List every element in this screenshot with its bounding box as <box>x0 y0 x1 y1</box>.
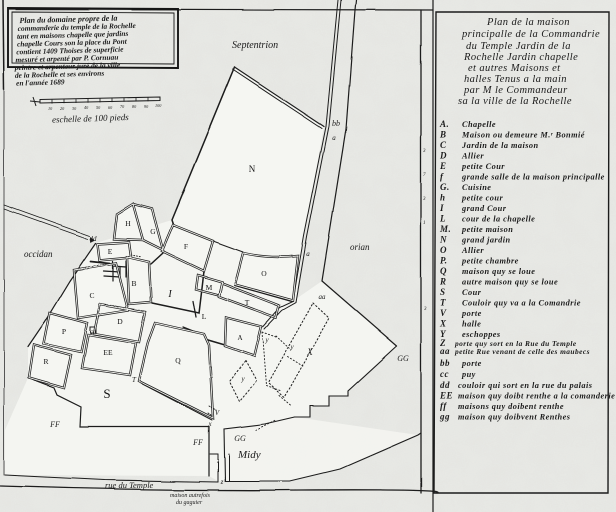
svg-text:P: P <box>62 327 66 336</box>
svg-text:du Temple Jardin de la: du Temple Jardin de la <box>466 41 571 52</box>
svg-text:sa la ville de la Rochelle: sa la ville de la Rochelle <box>458 96 572 107</box>
svg-text:Q: Q <box>440 266 447 276</box>
svg-text:B: B <box>439 130 446 140</box>
svg-text:grande salle de la maison prin: grande salle de la maison principalle <box>461 173 605 182</box>
svg-text:P.: P. <box>440 256 448 266</box>
svg-text:E: E <box>108 247 113 256</box>
svg-text:C: C <box>440 140 447 150</box>
svg-text:I: I <box>439 203 444 213</box>
svg-text:L: L <box>439 214 446 224</box>
svg-text:T: T <box>440 298 446 308</box>
svg-text:Cour: Cour <box>462 288 482 297</box>
svg-text:A: A <box>237 334 242 342</box>
svg-text:Allier: Allier <box>461 246 484 255</box>
svg-text:V: V <box>215 409 220 417</box>
svg-text:ff: ff <box>440 401 447 411</box>
svg-text:EE: EE <box>439 391 453 401</box>
svg-text:Maison ou demeure M.ʳ Bonmié: Maison ou demeure M.ʳ Bonmié <box>461 131 585 140</box>
svg-text:porte: porte <box>461 309 482 318</box>
svg-text:halle: halle <box>462 320 481 329</box>
svg-text:D: D <box>439 151 447 161</box>
svg-text:cc: cc <box>440 369 449 379</box>
svg-text:halles Tenus a la main: halles Tenus a la main <box>464 74 567 85</box>
svg-text:maison quy doibt renthe a la c: maison quy doibt renthe a la comanderie <box>458 392 615 401</box>
svg-text:Septentrion: Septentrion <box>232 40 278 51</box>
svg-text:EE: EE <box>103 348 113 357</box>
svg-text:S: S <box>103 386 110 401</box>
svg-text:L: L <box>202 312 207 321</box>
svg-text:N: N <box>439 235 447 245</box>
svg-text:Cuisine: Cuisine <box>462 183 491 192</box>
svg-text:petite Cour: petite Cour <box>461 162 505 171</box>
svg-text:bb: bb <box>332 119 340 128</box>
svg-text:V: V <box>440 308 447 318</box>
svg-text:M.: M. <box>439 224 451 234</box>
svg-text:I: I <box>167 289 172 300</box>
svg-text:H: H <box>125 219 131 228</box>
svg-text:autre maison quy se loue: autre maison quy se loue <box>462 278 558 287</box>
svg-text:a: a <box>332 134 336 142</box>
svg-text:petite maison: petite maison <box>461 225 513 234</box>
svg-text:O: O <box>440 245 447 255</box>
svg-text:bb: bb <box>440 358 450 368</box>
svg-text:petite chambre: petite chambre <box>461 257 519 266</box>
svg-text:a: a <box>306 250 310 258</box>
svg-text:grand jardin: grand jardin <box>461 236 511 245</box>
svg-text:grand Cour: grand Cour <box>461 204 507 213</box>
svg-text:orian: orian <box>350 242 370 252</box>
svg-text:en l'année 1689: en l'année 1689 <box>16 77 65 87</box>
svg-text:O: O <box>261 269 267 278</box>
svg-text:FF: FF <box>49 420 60 429</box>
svg-text:maison autrefois: maison autrefois <box>170 492 211 499</box>
svg-text:Q: Q <box>175 356 181 365</box>
svg-text:maison quy doibvent Renthes: maison quy doibvent Renthes <box>458 413 570 422</box>
svg-text:maisons quy doibent renthe: maisons quy doibent renthe <box>458 402 564 411</box>
svg-text:rue du Temple: rue du Temple <box>105 480 154 490</box>
svg-text:F: F <box>184 242 188 251</box>
svg-text:petite Rue venant de celle des: petite Rue venant de celle des maubecs <box>454 347 590 356</box>
svg-text:maison quy se loue: maison quy se loue <box>462 267 535 276</box>
svg-text:cour de la chapelle: cour de la chapelle <box>462 215 535 224</box>
svg-text:dd: dd <box>90 235 98 243</box>
svg-text:C: C <box>89 291 94 300</box>
svg-text:eschoppes: eschoppes <box>462 330 501 339</box>
svg-text:FF: FF <box>192 438 203 447</box>
svg-text:Chapelle: Chapelle <box>462 120 496 129</box>
svg-text:N: N <box>249 164 256 174</box>
svg-text:porte: porte <box>461 359 482 368</box>
svg-text:z: z <box>220 478 224 486</box>
svg-text:Rochelle Jardin chapelle: Rochelle Jardin chapelle <box>463 52 578 63</box>
svg-text:Jardin de la maison: Jardin de la maison <box>461 141 539 150</box>
svg-text:100: 100 <box>155 103 162 108</box>
svg-text:Couloir quy va a la Comandrie: Couloir quy va a la Comandrie <box>462 299 581 308</box>
svg-text:aa: aa <box>319 293 327 301</box>
svg-text:G.: G. <box>440 182 450 192</box>
svg-text:G: G <box>150 227 156 236</box>
svg-text:S: S <box>440 287 445 297</box>
svg-text:A.: A. <box>439 119 449 129</box>
svg-text:h: h <box>440 193 445 203</box>
svg-text:Allier: Allier <box>461 152 484 161</box>
svg-text:gg: gg <box>439 412 450 422</box>
svg-text:Midy: Midy <box>237 449 261 461</box>
svg-text:Plan de la maison: Plan de la maison <box>486 17 570 28</box>
svg-text:E: E <box>439 161 446 171</box>
svg-text:f: f <box>440 172 444 182</box>
svg-text:par M le Commandeur: par M le Commandeur <box>463 85 568 96</box>
svg-text:GG: GG <box>234 434 246 443</box>
svg-text:occidan: occidan <box>24 249 53 259</box>
svg-text:aa: aa <box>440 346 450 356</box>
svg-text:puy: puy <box>461 370 476 379</box>
svg-text:petite cour: petite cour <box>461 194 503 203</box>
svg-text:M: M <box>206 283 213 292</box>
svg-text:D: D <box>117 317 123 326</box>
svg-text:R: R <box>439 277 446 287</box>
svg-text:X: X <box>439 319 447 329</box>
svg-text:GG: GG <box>397 354 409 363</box>
svg-text:R: R <box>43 357 48 366</box>
svg-text:couloir qui sort en la rue du: couloir qui sort en la rue du palais <box>458 381 592 390</box>
svg-text:cc: cc <box>90 328 97 336</box>
svg-text:X: X <box>306 347 313 357</box>
svg-text:T: T <box>245 298 250 307</box>
svg-text:B: B <box>131 279 136 288</box>
svg-text:et autres Maisons et: et autres Maisons et <box>468 63 561 74</box>
svg-text:1: 1 <box>423 221 426 226</box>
svg-text:du gaguier: du gaguier <box>176 500 203 506</box>
svg-text:principalle de la Commandrie: principalle de la Commandrie <box>461 29 600 40</box>
svg-text:dd: dd <box>440 380 450 390</box>
